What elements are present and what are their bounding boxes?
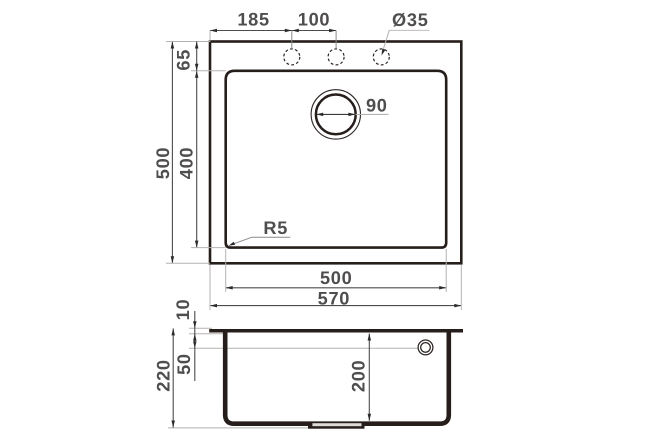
svg-text:200: 200 bbox=[349, 360, 369, 392]
svg-text:90: 90 bbox=[366, 96, 388, 116]
svg-text:500: 500 bbox=[320, 268, 352, 288]
svg-text:400: 400 bbox=[177, 147, 197, 179]
svg-text:Ø35: Ø35 bbox=[392, 10, 428, 30]
svg-text:10: 10 bbox=[173, 299, 193, 321]
svg-text:185: 185 bbox=[237, 10, 269, 30]
svg-text:220: 220 bbox=[154, 359, 174, 391]
svg-text:570: 570 bbox=[318, 289, 350, 309]
svg-text:100: 100 bbox=[298, 10, 330, 30]
svg-text:50: 50 bbox=[174, 353, 194, 375]
svg-text:R5: R5 bbox=[263, 218, 288, 238]
svg-text:65: 65 bbox=[174, 49, 194, 71]
svg-text:500: 500 bbox=[153, 147, 173, 179]
